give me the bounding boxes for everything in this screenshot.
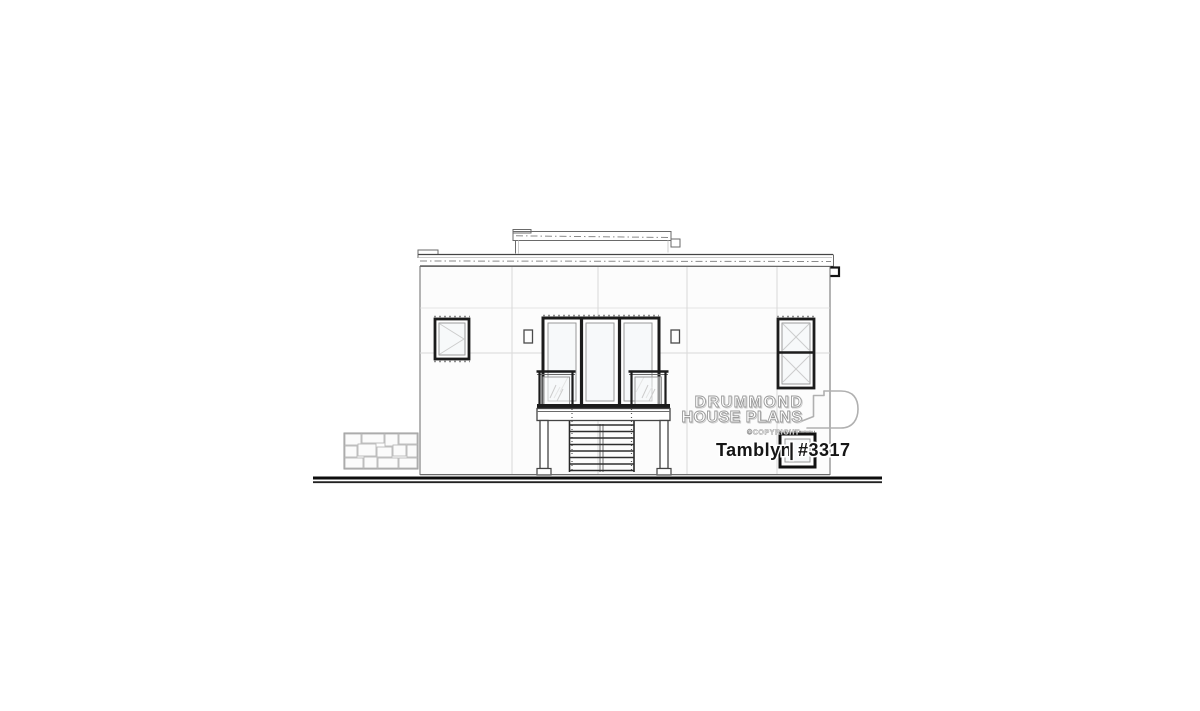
plan-title-separator: | bbox=[789, 440, 795, 460]
sconce-left-icon bbox=[524, 330, 533, 343]
left-casement-window bbox=[434, 317, 470, 362]
logo-line2: HOUSE PLANS bbox=[681, 409, 802, 426]
plan-title-text: Tamblyn | #3317 bbox=[716, 440, 851, 460]
stone-planter-wall bbox=[344, 433, 418, 469]
house-elevation-drawing: DRUMMOND DRUMMOND HOUSE PLANS HOUSE PLAN… bbox=[0, 0, 1200, 711]
sconce-right-icon bbox=[671, 330, 680, 343]
elevation-drawing-canvas: DRUMMOND DRUMMOND HOUSE PLANS HOUSE PLAN… bbox=[0, 0, 1200, 711]
plan-number: #3317 bbox=[798, 440, 851, 460]
plan-title: Tamblyn | #3317 bbox=[716, 440, 851, 460]
plan-name: Tamblyn bbox=[716, 440, 792, 460]
roof-parapet-fascia bbox=[418, 250, 834, 267]
copyright-text: ©COPYRIGHT bbox=[747, 429, 800, 437]
right-tall-window bbox=[777, 317, 815, 389]
rooftop-structure bbox=[513, 230, 680, 254]
ground-line bbox=[313, 475, 882, 483]
